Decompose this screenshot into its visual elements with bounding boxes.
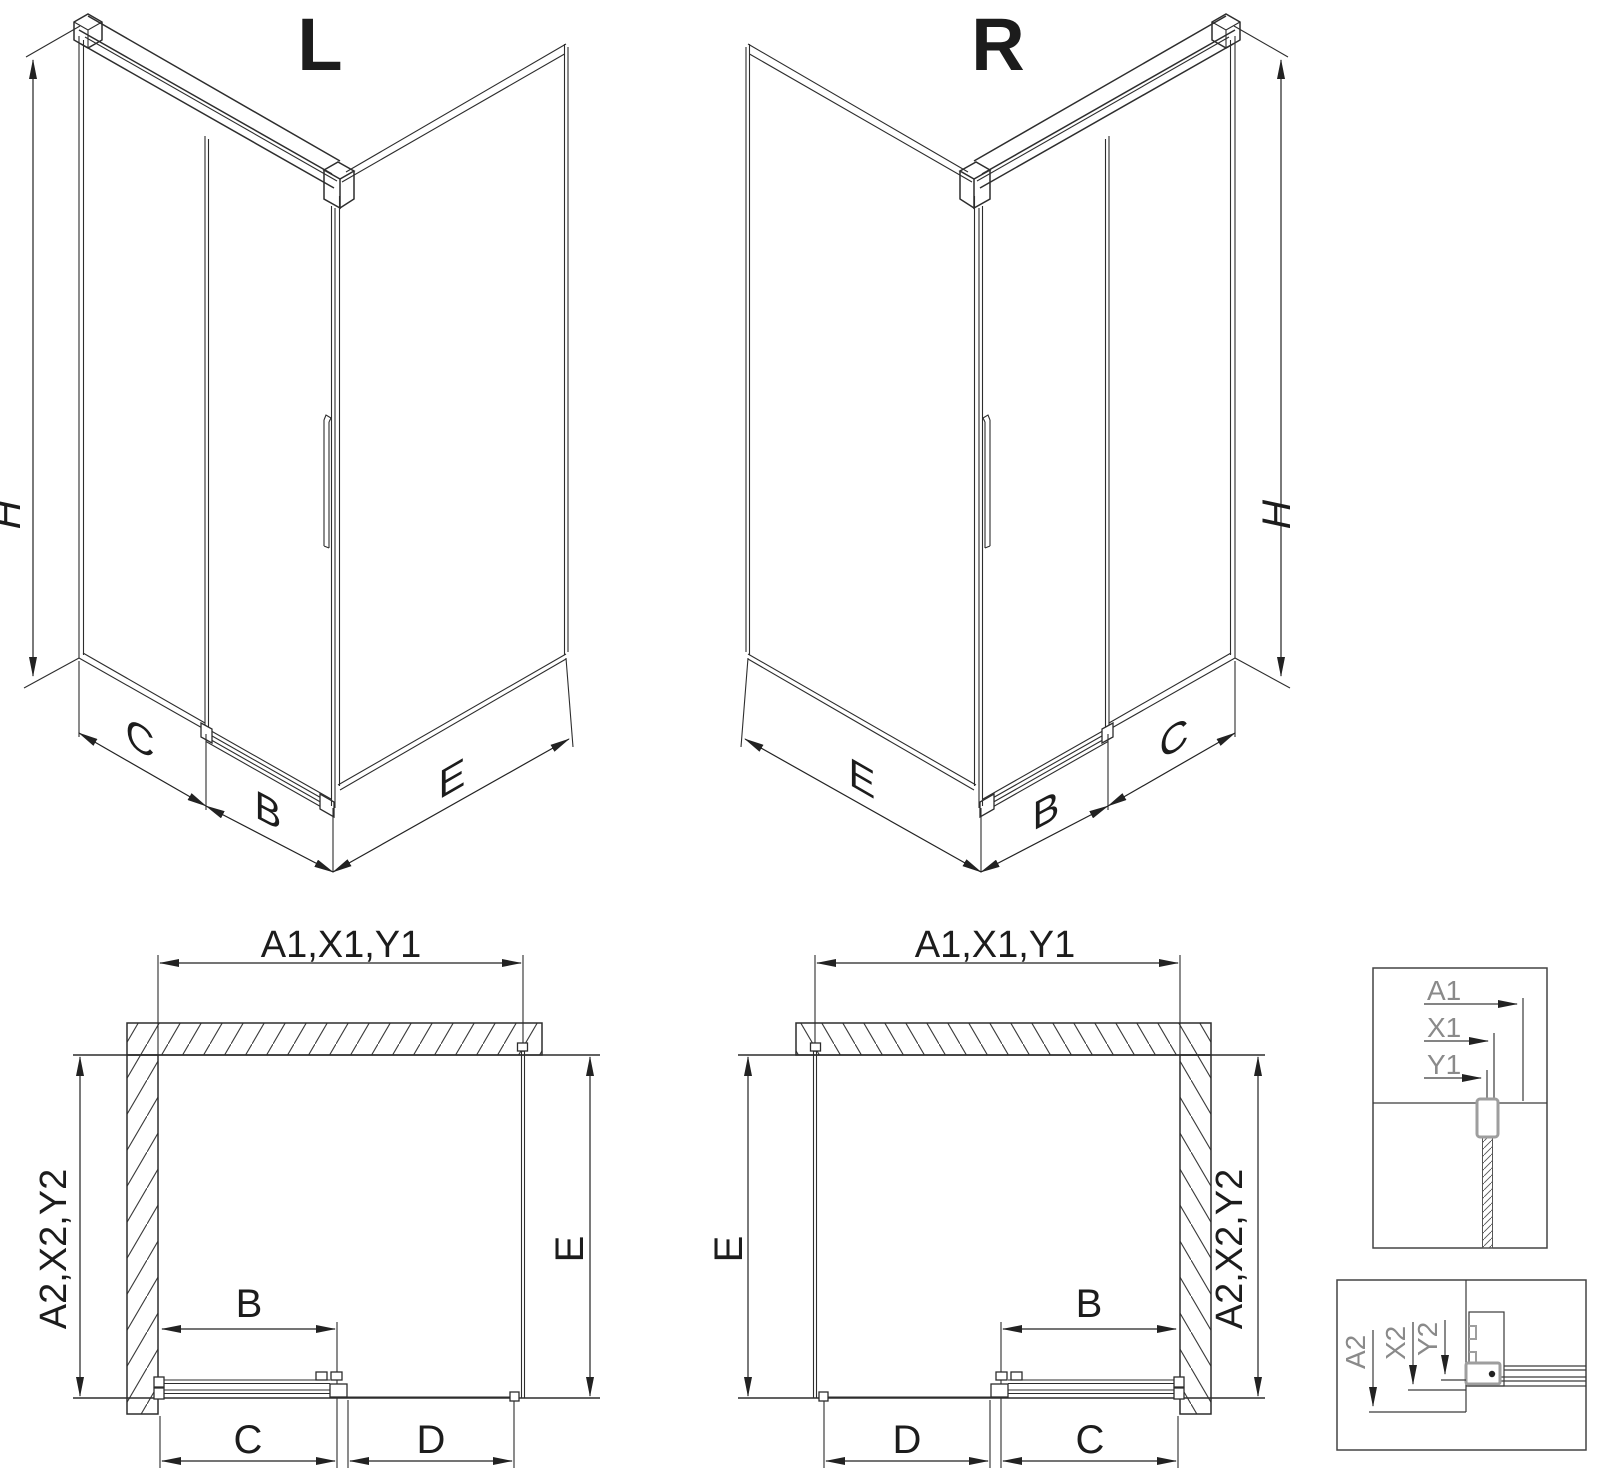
dim-label-height: H <box>1253 495 1298 534</box>
dim-label-height: H <box>0 495 29 534</box>
dim-label-fixed: C <box>1076 1418 1105 1462</box>
dim-label-opening: D <box>417 1418 446 1462</box>
detail-label-y1: Y1 <box>1427 1049 1461 1080</box>
variant-title-right: R <box>971 3 1024 86</box>
dim-label-width-group: A1,X1,Y1 <box>261 924 422 966</box>
dim-label-fixed: C <box>234 1418 263 1462</box>
dim-label-fixed-panel: C <box>126 708 155 769</box>
iso-view-left: L H C B E <box>0 3 573 872</box>
dim-label-depth-group: A2,X2,Y2 <box>1209 1169 1251 1330</box>
dim-label-door: B <box>1033 781 1060 840</box>
plan-geometry <box>73 955 600 1468</box>
detail-label-a1: A1 <box>1427 975 1461 1006</box>
plan-view-left: A1,X1,Y1 A2,X2,Y2 E B C D <box>33 924 600 1468</box>
iso-geometry <box>24 14 573 872</box>
detail-label-x2: X2 <box>1380 1326 1411 1360</box>
dim-label-return: E <box>707 1236 751 1263</box>
dim-label-door: B <box>236 1282 263 1326</box>
detail-label-x1: X1 <box>1427 1012 1461 1043</box>
plan-view-right: A1,X1,Y1 E A2,X2,Y2 B D C <box>707 924 1265 1468</box>
dim-label-door: B <box>1076 1282 1103 1326</box>
shower-enclosure-drawing: L H C B E R H E B C <box>0 0 1600 1474</box>
dim-label-fixed-panel: C <box>1160 708 1189 769</box>
dim-label-door: B <box>255 781 282 840</box>
plan-geometry-mirrored <box>738 955 1265 1468</box>
iso-view-right: R H E B C <box>741 3 1299 872</box>
detail-label-y2: Y2 <box>1412 1322 1443 1356</box>
iso-geometry-mirrored <box>741 14 1290 872</box>
detail-depth-offsets: A2 X2 Y2 <box>1337 1280 1586 1450</box>
dim-label-opening: D <box>893 1418 922 1462</box>
dim-label-depth-group: A2,X2,Y2 <box>33 1169 75 1330</box>
drawing-canvas: L H C B E R H E B C <box>0 0 1600 1474</box>
dim-label-width-group: A1,X1,Y1 <box>915 924 1076 966</box>
detail-width-offsets: A1 X1 Y1 <box>1373 968 1547 1248</box>
detail-label-a2: A2 <box>1340 1335 1371 1369</box>
dim-label-return: E <box>548 1236 592 1263</box>
variant-title-left: L <box>297 3 342 86</box>
